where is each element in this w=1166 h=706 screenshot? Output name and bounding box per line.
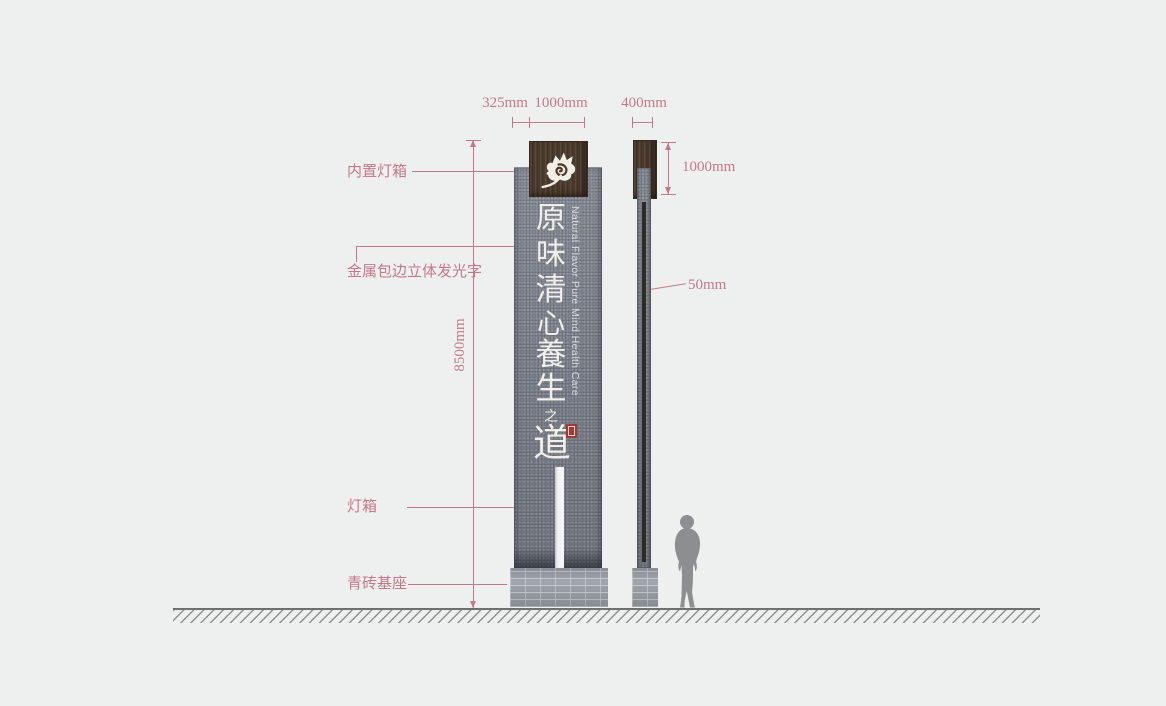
callout-builtin-lightbox: 内置灯箱 (347, 164, 407, 180)
dim-leader-50mm (651, 283, 686, 289)
dim-label-325mm: 325mm (477, 95, 533, 111)
dim-arrow-up (665, 143, 671, 150)
brick-base-side (632, 568, 658, 607)
dim-arrow-down (665, 187, 671, 194)
calligraphy-char: 原 (533, 204, 569, 234)
brick-base-front (510, 568, 608, 607)
english-tagline: Natural Flavor Pure Mind Health Care (567, 206, 581, 420)
dim-tick (632, 117, 633, 128)
seal-stamp-icon (566, 424, 577, 438)
calligraphy-char: 道 (533, 424, 569, 462)
dim-label-400mm: 400mm (614, 95, 674, 111)
calligraphy-char: 養 (533, 340, 569, 371)
dim-tick (584, 117, 585, 128)
dim-label-8500mm: 8500mm (452, 309, 468, 381)
dim-tick (512, 117, 513, 128)
dim-arrow-up (470, 140, 476, 147)
calligraphy-char: 心 (533, 310, 569, 338)
dim-tick (652, 117, 653, 128)
callout-leader (356, 246, 357, 262)
dim-tick (661, 194, 676, 195)
dim-label-1000mm-width: 1000mm (531, 95, 591, 111)
cloud-logo-icon (536, 146, 581, 192)
signage-dimension-drawing: 325mm 1000mm 400mm 8500mm 1000mm 50mm 内置… (0, 0, 1166, 706)
callout-brick-base: 青砖基座 (347, 576, 407, 592)
dim-line-front-width (513, 122, 585, 123)
callout-leader (408, 584, 507, 585)
ground-hatch (173, 610, 1040, 623)
dim-label-50mm: 50mm (688, 277, 726, 293)
callout-metal-trim-letters: 金属包边立体发光字 (347, 264, 482, 280)
calligraphy-char: 味 (533, 240, 569, 270)
calligraphy-char: 生 (533, 374, 569, 405)
dim-line-side-width (633, 122, 653, 123)
logo-lightbox (529, 141, 588, 197)
human-scale-figure (671, 514, 702, 608)
dim-tick (529, 117, 530, 128)
calligraphy-char: 清 (533, 275, 569, 306)
dim-label-1000mm-height: 1000mm (682, 159, 735, 175)
dim-line-total-height (473, 140, 474, 609)
callout-lightbox: 灯箱 (347, 499, 377, 515)
lightbox-slot (555, 467, 564, 568)
panel-gap-stripe (642, 202, 646, 562)
dim-arrow-down (470, 601, 476, 608)
